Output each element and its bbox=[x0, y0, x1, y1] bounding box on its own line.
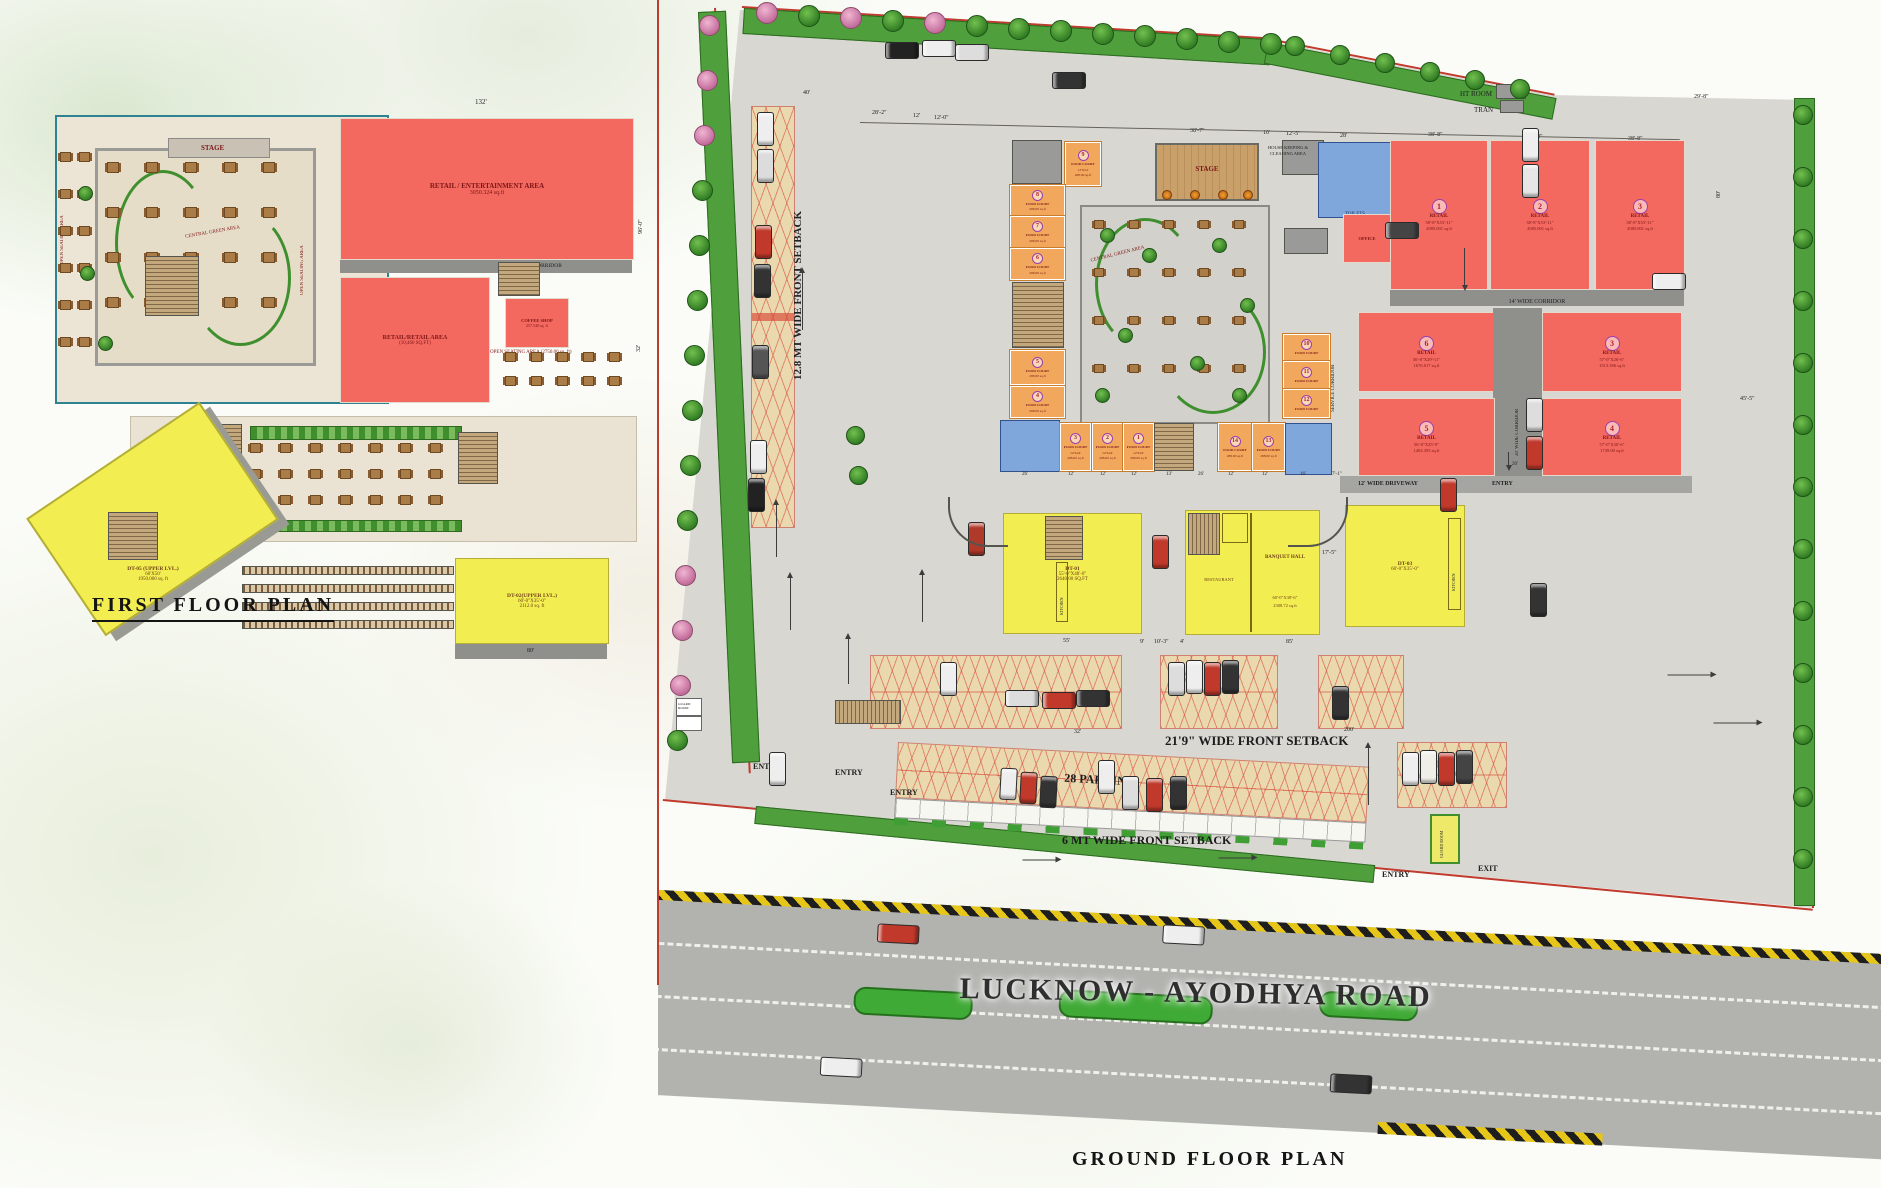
table-icon bbox=[609, 352, 620, 362]
restaurant-label: RESTAURANT bbox=[1192, 577, 1246, 582]
stall-number: 11 bbox=[1301, 367, 1312, 378]
tree-icon bbox=[1793, 849, 1813, 869]
table-icon bbox=[583, 352, 594, 362]
tree-icon bbox=[1465, 70, 1485, 90]
dim-label: 12' bbox=[1262, 472, 1268, 477]
dim-label: 17'-5" bbox=[1322, 550, 1337, 556]
food-court-stall: 4 FOOD COURT 288.00 sq.ft bbox=[1010, 386, 1065, 418]
table-icon bbox=[146, 162, 158, 173]
car-icon bbox=[1385, 222, 1419, 239]
dim-label: 55' bbox=[1063, 638, 1070, 644]
stall-size: 12'X24' bbox=[1078, 168, 1089, 173]
car-icon bbox=[1530, 583, 1547, 617]
ff-stage-label: STAGE bbox=[201, 144, 224, 152]
table-icon bbox=[430, 469, 441, 479]
store-room bbox=[1222, 513, 1248, 543]
dim-label: 12' bbox=[1131, 472, 1137, 477]
ff-retail-retail: RETAIL/RETAIL AREA (10,460 SQ.FT) bbox=[340, 277, 490, 403]
dim-label: 26' bbox=[1022, 472, 1028, 477]
table-icon bbox=[370, 443, 381, 453]
transformer-label: TRAN bbox=[1474, 106, 1493, 114]
housekeeping-label-1: HOUSE KEEPING & bbox=[1268, 145, 1308, 150]
entry-label: ENTRY bbox=[1492, 481, 1513, 487]
car-icon bbox=[1162, 924, 1205, 945]
car-icon bbox=[1122, 776, 1139, 810]
guard-room-label: GUARD ROOM bbox=[1439, 820, 1444, 858]
kitchen-label: KITCHEN bbox=[1451, 537, 1456, 591]
table-icon bbox=[557, 376, 568, 386]
anchor-dt03: DT-03 60'-0"X35'-0" bbox=[1345, 505, 1465, 627]
table-icon bbox=[263, 162, 275, 173]
ff-retail-entertainment: RETAIL / ENTERTAINMENT AREA 3050.324 sq.… bbox=[340, 118, 634, 260]
tree-icon bbox=[1240, 298, 1255, 313]
flower-pot-icon bbox=[1190, 190, 1200, 200]
electrical-room-block bbox=[1012, 140, 1062, 184]
tree-icon bbox=[78, 186, 93, 201]
table-icon bbox=[340, 495, 351, 505]
dt02-area: 2112.0 sq. ft bbox=[520, 604, 545, 609]
stall-label: FOOD COURT bbox=[1223, 448, 1247, 453]
table-icon bbox=[79, 226, 90, 236]
car-icon bbox=[1019, 772, 1038, 805]
stall-label: FOOD COURT bbox=[1026, 202, 1050, 207]
planter-row bbox=[250, 426, 462, 440]
direction-arrow-icon bbox=[802, 270, 803, 330]
stall-label: FOOD COURT bbox=[1026, 369, 1050, 374]
table-icon bbox=[250, 443, 261, 453]
tree-icon bbox=[1118, 328, 1133, 343]
ff-coffee-shop: COFFEE SHOP 257.540 sq. ft bbox=[505, 298, 569, 348]
stall-area: 288.00 sq.ft bbox=[1075, 173, 1092, 178]
retail-unit-number: 1 bbox=[1432, 199, 1447, 214]
table-icon bbox=[430, 495, 441, 505]
decking-strip bbox=[242, 566, 454, 575]
table-icon bbox=[1234, 268, 1244, 277]
stall-label: FOOD COURT bbox=[1295, 351, 1319, 356]
car-icon bbox=[1152, 535, 1169, 569]
car-icon bbox=[922, 40, 956, 57]
kitchen-label: KITCHEN bbox=[1059, 569, 1064, 615]
flowering-tree-icon bbox=[694, 125, 715, 146]
ground-floor-title: GROUND FLOOR PLAN bbox=[1072, 1148, 1347, 1171]
transformer-block bbox=[1500, 100, 1524, 113]
tree-icon bbox=[1176, 28, 1198, 50]
stall-area: 288.00 sq.ft bbox=[1099, 456, 1116, 461]
car-icon bbox=[1204, 662, 1221, 696]
dim-label: 28'-2" bbox=[872, 110, 887, 116]
tree-icon bbox=[667, 730, 688, 751]
driveway-label: 12' WIDE DRIVEWAY bbox=[1358, 481, 1418, 487]
tree-icon bbox=[1232, 388, 1247, 403]
setback-front2-label: 6 MT WIDE FRONT SETBACK bbox=[1062, 833, 1231, 848]
stall-number: 14 bbox=[1230, 436, 1241, 447]
site-plan-canvas: LUCKNOW - AYODHYA ROAD 12.8 MT WIDE FRON… bbox=[0, 0, 1881, 1188]
stairs bbox=[145, 256, 199, 316]
car-icon bbox=[748, 478, 765, 512]
food-court-stall: 8 FOOD COURT 288.00 sq.ft bbox=[1010, 185, 1065, 216]
table-icon bbox=[263, 207, 275, 218]
guard-room-block: GUARD ROOM bbox=[676, 698, 702, 716]
corridor-14-label: 14' WIDE CORRIDOR bbox=[1509, 299, 1566, 305]
ff-corridor: 14' WIDE CORRIDOR bbox=[340, 260, 632, 273]
car-icon bbox=[877, 923, 920, 944]
dim-label: 16' bbox=[1300, 472, 1306, 477]
stall-number: 3 bbox=[1070, 433, 1081, 444]
first-floor-title: FIRST FLOOR PLAN bbox=[92, 594, 334, 622]
flowering-tree-icon bbox=[840, 7, 862, 29]
table-icon bbox=[1129, 268, 1139, 277]
table-icon bbox=[1234, 364, 1244, 373]
table-icon bbox=[224, 162, 236, 173]
tree-icon bbox=[1100, 228, 1115, 243]
car-icon bbox=[940, 662, 957, 696]
retail-unit-area: 2085.001 sq.ft bbox=[1527, 226, 1553, 232]
retail-unit-area: 2085.001 sq.ft bbox=[1627, 226, 1653, 232]
table-icon bbox=[505, 352, 516, 362]
ff-coffee-area: 257.540 sq. ft bbox=[526, 323, 548, 328]
tree-icon bbox=[1092, 23, 1114, 45]
car-icon bbox=[1456, 750, 1473, 784]
flowering-tree-icon bbox=[672, 620, 693, 641]
table-icon bbox=[1234, 316, 1244, 325]
stall-label: FOOD COURT bbox=[1026, 403, 1050, 408]
table-icon bbox=[1094, 364, 1104, 373]
dim-label: 10'-3" bbox=[1154, 639, 1169, 645]
table-icon bbox=[1164, 316, 1174, 325]
dim-label: 96'-0" bbox=[638, 190, 644, 234]
retail-unit-number: 3 bbox=[1605, 336, 1620, 351]
table-icon bbox=[60, 189, 71, 199]
tree-icon bbox=[1218, 31, 1240, 53]
tree-icon bbox=[1793, 477, 1813, 497]
table-icon bbox=[79, 152, 90, 162]
table-icon bbox=[1199, 268, 1209, 277]
retail-unit-4: 4 RETAIL 57'-0"X30'-6" 1739.00 sq.ft bbox=[1542, 398, 1682, 476]
ff-stage: STAGE bbox=[168, 138, 270, 158]
retail-unit-5: 5 RETAIL 56'-0"X25'-0" 1402.395 sq.ft bbox=[1358, 398, 1495, 476]
tree-icon bbox=[80, 266, 95, 281]
car-icon bbox=[1440, 478, 1457, 512]
car-icon bbox=[752, 345, 769, 379]
table-icon bbox=[370, 469, 381, 479]
retail-unit-6: 6 RETAIL 56'-0"X29'-11" 1676.017 sq.ft bbox=[1358, 312, 1495, 392]
tree-icon bbox=[1134, 25, 1156, 47]
retail-unit-area: 1402.395 sq.ft bbox=[1414, 448, 1440, 454]
car-icon bbox=[885, 42, 919, 59]
table-icon bbox=[224, 207, 236, 218]
road-name-label: LUCKNOW - AYODHYA ROAD bbox=[959, 972, 1432, 1014]
housekeeping-label-2: CLEANING AREA bbox=[1270, 151, 1306, 156]
toilet-block bbox=[1000, 420, 1060, 472]
flowering-tree-icon bbox=[670, 675, 691, 696]
direction-arrow-icon bbox=[1368, 745, 1369, 805]
entry-label: ENTRY bbox=[835, 768, 863, 777]
table-icon bbox=[107, 297, 119, 308]
retail-unit-area: 1739.00 sq.ft bbox=[1600, 448, 1624, 454]
table-icon bbox=[79, 337, 90, 347]
tree-icon bbox=[677, 510, 698, 531]
table-icon bbox=[263, 297, 275, 308]
stall-number: 7 bbox=[1032, 221, 1043, 232]
flowering-tree-icon bbox=[697, 70, 718, 91]
food-court-stall: 2 FOOD COURT 12'X24' 288.00 sq.ft bbox=[1092, 423, 1123, 471]
car-icon bbox=[1042, 692, 1076, 709]
planter-row bbox=[250, 520, 462, 532]
service-corridor-label: SERVICE CORRIDOR bbox=[1331, 342, 1336, 412]
dim-label: 12' bbox=[913, 113, 920, 119]
table-icon bbox=[60, 263, 71, 273]
tree-icon bbox=[849, 466, 868, 485]
guard-room-block: GUARD ROOM bbox=[1430, 814, 1460, 864]
stairs bbox=[108, 512, 158, 560]
office-block: OFFICE bbox=[1343, 214, 1391, 263]
stall-label: FOOD COURT bbox=[1257, 448, 1281, 453]
table-icon bbox=[531, 376, 542, 386]
tree-icon bbox=[1793, 229, 1813, 249]
table-icon bbox=[79, 300, 90, 310]
car-icon bbox=[1402, 752, 1419, 786]
stairs bbox=[498, 262, 540, 296]
car-icon bbox=[1438, 752, 1455, 786]
table-icon bbox=[531, 352, 542, 362]
dim-label: 12' bbox=[1100, 472, 1106, 477]
direction-arrow-icon bbox=[922, 572, 923, 622]
stall-number: 12 bbox=[1301, 395, 1312, 406]
car-icon bbox=[820, 1057, 863, 1078]
open-seating-label: OPEN SEATING AREA bbox=[300, 205, 305, 295]
stairs bbox=[458, 432, 498, 484]
direction-arrow-icon bbox=[1508, 452, 1509, 468]
dim-label: 32' bbox=[636, 326, 642, 352]
car-icon bbox=[1168, 662, 1185, 696]
tree-icon bbox=[98, 336, 113, 351]
table-icon bbox=[224, 252, 236, 263]
kitchen-strip: KITCHEN bbox=[1448, 518, 1461, 610]
food-court-stall: 9 FOOD COURT 12'X24' 288.00 sq.ft bbox=[1065, 142, 1101, 186]
tree-icon bbox=[1050, 20, 1072, 42]
car-icon bbox=[1420, 750, 1437, 784]
retail-unit-number: 4 bbox=[1605, 421, 1620, 436]
ht-room-label: HT ROOM bbox=[1460, 90, 1492, 98]
ff-walkway-band: 80' bbox=[455, 644, 607, 659]
car-icon bbox=[757, 149, 774, 183]
flowering-tree-icon bbox=[756, 2, 778, 24]
tree-icon bbox=[692, 180, 713, 201]
corridor-20-label: 20' WIDE CORRIDOR bbox=[1515, 336, 1520, 456]
flowering-tree-icon bbox=[675, 565, 696, 586]
table-icon bbox=[60, 300, 71, 310]
road: LUCKNOW - AYODHYA ROAD bbox=[658, 889, 1881, 1163]
exit-label: EXIT bbox=[1478, 864, 1498, 873]
tree-icon bbox=[1285, 36, 1305, 56]
stall-label: FOOD COURT bbox=[1071, 162, 1095, 167]
ff-dt02-block: DT-02(UPPER LVL.) 60'-0"X35'-0" 2112.0 s… bbox=[455, 558, 609, 644]
tree-icon bbox=[1420, 62, 1440, 82]
table-icon bbox=[340, 469, 351, 479]
tree-icon bbox=[966, 15, 988, 37]
food-court-stall: 3 FOOD COURT 12'X24' 288.00 sq.ft bbox=[1060, 423, 1091, 471]
table-icon bbox=[1199, 316, 1209, 325]
dim-label: 85' bbox=[1286, 639, 1293, 645]
dim-label: 13' bbox=[1166, 472, 1172, 477]
parking-row-mid-right bbox=[1318, 655, 1404, 729]
table-icon bbox=[340, 443, 351, 453]
tree-icon bbox=[1260, 33, 1282, 55]
dim-label: 20' bbox=[1512, 462, 1518, 467]
stall-area: 288.00 sq.ft bbox=[1029, 207, 1046, 212]
car-icon bbox=[1098, 760, 1115, 794]
stall-number: 9 bbox=[1078, 150, 1089, 161]
table-icon bbox=[185, 207, 197, 218]
table-icon bbox=[1199, 220, 1209, 229]
stall-area: 288.00 sq.ft bbox=[1029, 409, 1046, 414]
flower-pot-icon bbox=[1218, 190, 1228, 200]
tree-icon bbox=[1793, 539, 1813, 559]
tree-icon bbox=[682, 400, 703, 421]
stall-area: 288.00 sq.ft bbox=[1067, 456, 1084, 461]
direction-arrow-icon bbox=[776, 502, 777, 557]
green-verge-right bbox=[1794, 98, 1815, 906]
table-icon bbox=[280, 495, 291, 505]
dim-label: 4' bbox=[1180, 639, 1184, 645]
flower-pot-icon bbox=[1162, 190, 1172, 200]
direction-arrow-icon bbox=[790, 575, 791, 630]
tree-icon bbox=[689, 235, 710, 256]
stall-number: 8 bbox=[1032, 190, 1043, 201]
flowering-tree-icon bbox=[699, 15, 720, 36]
car-icon bbox=[1039, 776, 1058, 809]
stairs bbox=[1154, 423, 1194, 471]
direction-arrow-icon bbox=[1714, 723, 1760, 724]
table-icon bbox=[310, 443, 321, 453]
dt05-area: 1950.000 sq. ft bbox=[88, 577, 218, 582]
tree-icon bbox=[687, 290, 708, 311]
table-icon bbox=[1094, 268, 1104, 277]
stall-label: FOOD COURT bbox=[1295, 379, 1319, 384]
table-icon bbox=[107, 162, 119, 173]
guard-room-label: GUARD ROOM bbox=[678, 702, 701, 710]
table-icon bbox=[60, 152, 71, 162]
table-icon bbox=[370, 495, 381, 505]
entry-label: ENTRY bbox=[1382, 870, 1410, 879]
banquet-name: BANQUET HALL bbox=[1254, 555, 1316, 560]
car-icon bbox=[769, 752, 786, 786]
tree-icon bbox=[1212, 238, 1227, 253]
tree-icon bbox=[1190, 356, 1205, 371]
tree-icon bbox=[1510, 79, 1530, 99]
toilets-block: TOILETS bbox=[1318, 142, 1392, 218]
food-court-stall: 10 FOOD COURT bbox=[1283, 334, 1330, 361]
retail-unit-3: 3 RETAIL 38'-8"X53'-11" 2085.001 sq.ft bbox=[1595, 140, 1685, 290]
tree-icon bbox=[1793, 167, 1813, 187]
table-icon bbox=[60, 226, 71, 236]
road-edge-hazard-strip bbox=[1377, 1122, 1602, 1146]
car-icon bbox=[1522, 164, 1539, 198]
tree-icon bbox=[1330, 45, 1350, 65]
table-icon bbox=[107, 207, 119, 218]
dim-label: 29'-8" bbox=[1694, 94, 1709, 100]
table-icon bbox=[310, 469, 321, 479]
table-icon bbox=[609, 376, 620, 386]
stall-size: 12'X24' bbox=[1102, 451, 1113, 456]
table-icon bbox=[1164, 364, 1174, 373]
utility-block bbox=[1284, 228, 1328, 254]
pump-room-block bbox=[1285, 423, 1332, 475]
table-icon bbox=[400, 495, 411, 505]
car-icon bbox=[1522, 128, 1539, 162]
dt03-size: 60'-0"X35'-0" bbox=[1391, 567, 1419, 572]
retail-unit-area: 1676.017 sq.ft bbox=[1414, 363, 1440, 369]
stall-label: FOOD COURT bbox=[1026, 233, 1050, 238]
table-icon bbox=[1129, 220, 1139, 229]
tree-icon bbox=[1793, 105, 1813, 125]
entry-label: ENTRY bbox=[890, 788, 918, 797]
stall-label: FOOD COURT bbox=[1127, 445, 1151, 450]
stairs bbox=[1045, 516, 1083, 560]
stairs bbox=[1188, 513, 1220, 555]
food-court-stall: 13 FOOD COURT 288.00 sq.ft bbox=[1252, 423, 1285, 471]
table-icon bbox=[310, 495, 321, 505]
food-court-stall: 6 FOOD COURT 288.00 sq.ft bbox=[1010, 248, 1065, 280]
dim-label: 12'-0" bbox=[934, 115, 949, 121]
ff-retail-ent-area: 3050.324 sq.ft bbox=[470, 190, 505, 196]
table-icon bbox=[557, 352, 568, 362]
decking-strip bbox=[242, 584, 454, 593]
car-icon bbox=[1526, 398, 1543, 432]
stall-number: 2 bbox=[1102, 433, 1113, 444]
tree-icon bbox=[1793, 787, 1813, 807]
stall-size: 12'X24' bbox=[1133, 451, 1144, 456]
dim-label: 132' bbox=[475, 98, 487, 106]
table-icon bbox=[1094, 316, 1104, 325]
food-court-stall: 5 FOOD COURT 288.00 sq.ft bbox=[1010, 350, 1065, 385]
travelator bbox=[835, 700, 901, 724]
food-court-stall: 7 FOOD COURT 288.00 sq.ft bbox=[1010, 216, 1065, 248]
road-area: LUCKNOW - AYODHYA ROAD bbox=[658, 878, 1881, 1188]
stall-label: FOOD COURT bbox=[1295, 407, 1319, 412]
flowering-tree-icon bbox=[924, 12, 946, 34]
tree-icon bbox=[684, 345, 705, 366]
dim-label: 12' bbox=[1068, 472, 1074, 477]
stall-number: 6 bbox=[1032, 253, 1043, 264]
retail-unit-number: 3 bbox=[1633, 199, 1648, 214]
corridor-14: 14' WIDE CORRIDOR bbox=[1390, 290, 1684, 306]
stall-label: FOOD COURT bbox=[1096, 445, 1120, 450]
car-icon bbox=[1526, 436, 1543, 470]
ff-retail-retail-area: (10,460 SQ.FT) bbox=[399, 341, 431, 346]
stall-area: 288.00 sq.ft bbox=[1029, 271, 1046, 276]
dim-label: 80' bbox=[527, 648, 534, 654]
car-icon bbox=[1005, 690, 1039, 707]
direction-arrow-icon bbox=[848, 636, 849, 684]
stall-number: 10 bbox=[1301, 339, 1312, 350]
food-court-stall: 11 FOOD COURT bbox=[1283, 361, 1330, 389]
stall-number: 4 bbox=[1032, 391, 1043, 402]
direction-arrow-icon bbox=[1219, 858, 1255, 859]
direction-arrow-icon bbox=[1668, 675, 1714, 676]
tree-icon bbox=[1095, 388, 1110, 403]
stall-number: 1 bbox=[1133, 433, 1144, 444]
table-icon bbox=[280, 443, 291, 453]
stall-number: 5 bbox=[1032, 357, 1043, 368]
car-icon bbox=[1052, 72, 1086, 89]
banquet-area: 2308.72 sq.ft bbox=[1254, 603, 1316, 608]
retail-unit-number: 6 bbox=[1419, 336, 1434, 351]
car-icon bbox=[999, 768, 1018, 801]
food-court-stall: 1 FOOD COURT 12'X24' 288.00 sq.ft bbox=[1123, 423, 1154, 471]
stall-label: FOOD COURT bbox=[1026, 265, 1050, 270]
car-icon bbox=[1330, 1073, 1373, 1094]
